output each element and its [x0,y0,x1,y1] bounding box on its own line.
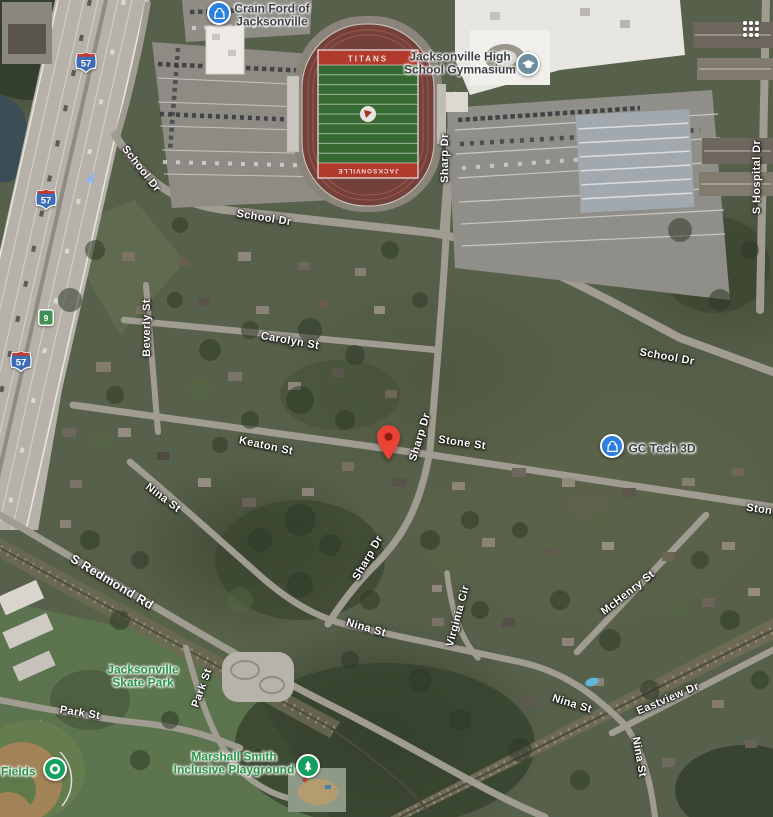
poi-label-line: GC Tech 3D [628,442,695,455]
poi-gc-tech-label[interactable]: GC Tech 3D [628,442,695,455]
street-label: S Redmond Rd [68,552,156,613]
street-label: Virginia Cir [444,584,472,648]
street-label: Carolyn St [260,330,320,352]
street-label: Keaton St [238,434,294,457]
tree-icon[interactable] [296,754,320,778]
street-label: Nina St [143,481,183,515]
interstate-shield: 57 [10,349,32,378]
street-label: Eastview Dr [635,680,701,717]
shopping-bag-icon[interactable] [600,434,624,458]
street-label: S Hospital Dr [751,140,763,214]
map-marker-pin[interactable] [377,425,400,460]
street-label: Park St [59,704,101,722]
poi-playground-label[interactable]: Marshall Smith Inclusive Playground [174,751,295,778]
street-label: Nina St [630,736,649,778]
svg-text:9: 9 [44,313,49,323]
apps-grid-icon[interactable] [742,20,760,38]
poi-label-line: Skate Park [107,677,178,690]
svg-text:57: 57 [16,358,27,369]
poi-crain-ford-label[interactable]: Crain Ford of Jacksonville [234,3,309,30]
street-label: Nina St [551,692,593,715]
interstate-shield: 57 [35,187,57,216]
interstate-shield: 57 [75,50,97,79]
street-label: Sharp Dr [407,412,433,463]
graduation-cap-icon[interactable] [516,52,540,76]
street-label: Beverly St [141,299,153,357]
street-label: McHenry St [599,568,657,617]
poi-gymnasium-label[interactable]: Jacksonville High School Gymnasium [404,51,516,78]
poi-fields-label[interactable]: l Fields [0,765,36,778]
fields-dot-icon[interactable] [43,757,67,781]
shopping-bag-icon[interactable] [207,1,231,25]
street-label: School Dr [639,346,696,367]
poi-skate-park-label[interactable]: Jacksonville Skate Park [107,664,178,691]
svg-text:57: 57 [81,59,92,70]
street-label: Sharp Dr [350,533,385,582]
street-label: School Dr [236,208,293,229]
street-label: Sharp Dr [439,133,451,183]
poi-label-line: l Fields [0,765,36,778]
street-label: Stone St [437,434,486,453]
poi-label-line: School Gymnasium [404,64,516,77]
state-highway-shield: 9 [38,309,54,331]
poi-label-line: Inclusive Playground [174,764,295,777]
poi-label-line: Jacksonville [234,16,309,29]
street-label: Park St [189,667,214,709]
street-label: Nina St [345,617,387,640]
street-label: School Dr [119,143,163,194]
street-label: Stone St [745,502,773,521]
map-viewport[interactable]: TITANS JACKSONVILLE [0,0,773,817]
labels-layer: School DrSchool DrSchool DrSharp DrSharp… [0,0,773,817]
svg-text:57: 57 [41,196,52,207]
